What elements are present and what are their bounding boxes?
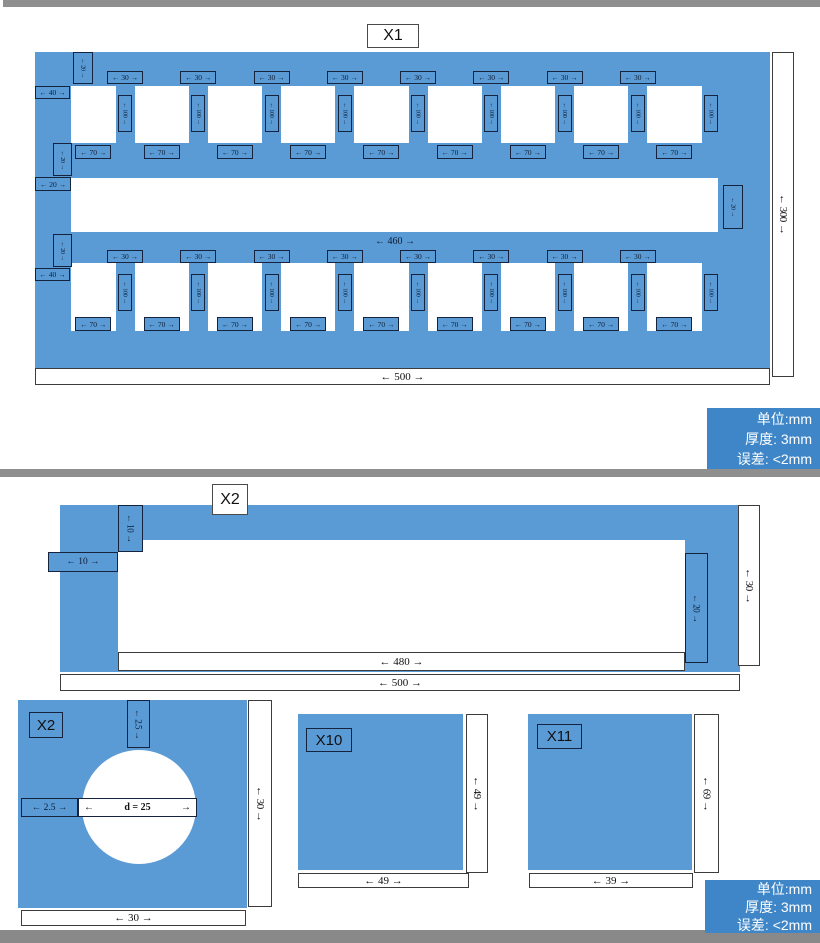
x2-square-width-strip: ← 30 → <box>21 910 246 926</box>
dim-tooth-width: ← 30 → <box>400 71 436 84</box>
x1-overall-height-label: ← 300 → <box>777 194 789 235</box>
x1-comb-gap-cutout <box>71 86 116 143</box>
dim-tooth-height: ← 100 → <box>704 95 718 132</box>
x10-shape: X10 <box>298 714 463 870</box>
diameter-arrow-right: → <box>181 802 191 813</box>
dim-x2-left-col: ← 10 → <box>48 552 118 572</box>
dim-tooth-width: ← 30 → <box>547 250 583 263</box>
x11-shape: X11 <box>528 714 692 870</box>
x2-square-height-label: ← 30 → <box>254 786 266 822</box>
dim-gap-width: ← 70 → <box>217 145 253 159</box>
x10-width-label: ← 49 → <box>364 875 403 887</box>
dim-tooth-height: ← 100 → <box>631 95 645 132</box>
spec-thickness: 厚度: 3mm <box>745 429 812 449</box>
dim-x2-right-col: ← 20 → <box>685 553 708 663</box>
part-x1-title: X1 <box>367 24 419 48</box>
x1-comb-gap-cutout <box>281 86 335 143</box>
x2-height-label: ← 30 → <box>743 568 755 604</box>
dim-tooth-height: ← 100 → <box>484 95 498 132</box>
dim-tooth-height: ← 100 → <box>558 274 572 311</box>
x1-overall-width-strip: ← 500 → <box>35 368 770 385</box>
dim-tooth-height: ← 100 → <box>484 274 498 311</box>
spec-unit-2: 单位:mm <box>757 880 812 898</box>
dim-tooth-height: ← 100 → <box>118 274 132 311</box>
dim-gap-width: ← 70 → <box>75 317 111 331</box>
spec-thickness-2: 厚度: 3mm <box>745 898 812 916</box>
dim-gap-width: ← 70 → <box>656 145 692 159</box>
part-x1-title-text: X1 <box>383 27 403 45</box>
x10-height-strip: ← 49 → <box>466 714 488 873</box>
dim-tooth-height: ← 100 → <box>265 274 279 311</box>
dim-left-col-width-bottom: ← 40 → <box>35 268 70 281</box>
x1-comb-gap-cutout <box>135 86 189 143</box>
dim-gap-width: ← 70 → <box>144 145 180 159</box>
section-divider-bar <box>0 469 820 477</box>
diameter-value: d = 25 <box>124 802 150 813</box>
dim-tooth-width: ← 30 → <box>400 250 436 263</box>
x1-comb-gap-cutout <box>354 86 408 143</box>
spec-tolerance: 误差: <2mm <box>737 449 812 469</box>
x2-inner-width-label: ← 480 → <box>380 656 424 668</box>
dim-tooth-width: ← 30 → <box>547 71 583 84</box>
bottom-gray-bar <box>0 930 820 943</box>
dim-tooth-width: ← 30 → <box>473 250 509 263</box>
dim-gap-width: ← 70 → <box>144 317 180 331</box>
part-x2-title-text: X2 <box>220 491 240 509</box>
dim-tooth-width: ← 30 → <box>254 71 290 84</box>
x2-square-height-strip: ← 30 → <box>248 700 272 907</box>
dim-gap-width: ← 70 → <box>583 145 619 159</box>
dim-tooth-height: ← 100 → <box>118 95 132 132</box>
x1-shape: ← 20 → ← 40 → ← 20 → ← 20 → ← 20 → ← 460… <box>35 52 770 368</box>
part-x2-square-title: X2 <box>29 712 63 738</box>
dim-tooth-width: ← 30 → <box>107 71 143 84</box>
spec-info-box-1: 单位:mm 厚度: 3mm 误差: <2mm <box>707 408 820 469</box>
dim-gap-width: ← 70 → <box>437 145 473 159</box>
part-x10-title: X10 <box>306 728 352 752</box>
dim-gap-width: ← 70 → <box>75 145 111 159</box>
dim-gap-width: ← 70 → <box>510 145 546 159</box>
x1-overall-height-strip: ← 300 → <box>772 52 794 377</box>
part-x11-title: X11 <box>537 724 582 749</box>
x2-shape: ← 480 → ← 10 → ← 10 → ← 20 → <box>60 505 740 672</box>
x1-comb-gap-cutout <box>574 86 628 143</box>
dim-slot-length: ← 460 → <box>335 233 455 249</box>
x1-middle-slot-cutout <box>71 178 718 232</box>
x2-square-width-label: ← 30 → <box>114 912 153 924</box>
dim-tooth-width: ← 30 → <box>620 71 656 84</box>
dim-gap-width: ← 70 → <box>583 317 619 331</box>
dim-gap-width: ← 70 → <box>217 317 253 331</box>
x1-comb-gap-cutout <box>428 86 482 143</box>
dim-tooth-height: ← 100 → <box>191 274 205 311</box>
x1-comb-gap-cutout <box>208 86 262 143</box>
dim-gap-width: ← 70 → <box>290 145 326 159</box>
dim-tooth-height: ← 100 → <box>265 95 279 132</box>
dim-tooth-height: ← 100 → <box>631 274 645 311</box>
part-x2-title: X2 <box>212 484 248 515</box>
x1-comb-gap-cutout <box>647 86 701 143</box>
dim-x2-top-band: ← 10 → <box>118 505 143 552</box>
dim-tooth-width: ← 30 → <box>620 250 656 263</box>
dim-mid-band-height-2: ← 20 → <box>53 234 72 267</box>
dim-tooth-width: ← 30 → <box>180 250 216 263</box>
dim-tooth-height: ← 100 → <box>411 274 425 311</box>
x11-width-label: ← 39 → <box>592 875 631 887</box>
top-gray-bar <box>3 0 820 7</box>
x1-comb-gap-cutout <box>501 86 555 143</box>
dim-left-col-width-top: ← 40 → <box>35 86 70 99</box>
x2-overall-width-strip: ← 500 → <box>60 674 740 691</box>
spec-unit: 单位:mm <box>757 409 812 429</box>
dim-gap-width: ← 70 → <box>363 317 399 331</box>
x11-height-label: ← 69 → <box>701 776 713 812</box>
x2-square-shape: X2 ← 2.5 → ← 2.5 → ← d = 25 → <box>18 700 247 908</box>
x2-inner-cutout <box>118 540 685 652</box>
dim-gap-width: ← 70 → <box>290 317 326 331</box>
diameter-arrow-left: ← <box>84 802 94 813</box>
dim-hole-diameter-band: ← d = 25 → <box>78 798 197 817</box>
dim-gap-width: ← 70 → <box>437 317 473 331</box>
dim-tooth-width: ← 30 → <box>107 250 143 263</box>
x2-inner-width-strip: ← 480 → <box>118 652 685 671</box>
x10-width-strip: ← 49 → <box>298 873 469 888</box>
dim-gap-width: ← 70 → <box>363 145 399 159</box>
drawing-page: X1 ← 20 → ← 40 → ← 20 → ← 20 → ← 20 → ← … <box>0 0 820 943</box>
x11-height-strip: ← 69 → <box>694 714 719 873</box>
dim-hole-left-offset: ← 2.5 → <box>21 798 78 817</box>
dim-gap-width: ← 70 → <box>510 317 546 331</box>
part-x11-title-text: X11 <box>547 728 573 745</box>
dim-tooth-height: ← 100 → <box>558 95 572 132</box>
x10-height-label: ← 49 → <box>471 776 483 812</box>
x11-width-strip: ← 39 → <box>529 873 693 888</box>
spec-info-box-2: 单位:mm 厚度: 3mm 误差: <2mm <box>705 880 820 933</box>
dim-tooth-height: ← 100 → <box>338 95 352 132</box>
spec-tolerance-2: 误差: <2mm <box>737 916 812 934</box>
dim-gap-width: ← 70 → <box>656 317 692 331</box>
dim-tooth-height: ← 100 → <box>704 274 718 311</box>
part-x2-square-title-text: X2 <box>37 717 55 734</box>
dim-tooth-height: ← 100 → <box>191 95 205 132</box>
dim-tooth-width: ← 30 → <box>327 71 363 84</box>
dim-tooth-width: ← 30 → <box>473 71 509 84</box>
part-x10-title-text: X10 <box>316 732 343 749</box>
dim-mid-band-height-1: ← 20 → <box>53 143 72 176</box>
dim-tooth-width: ← 30 → <box>254 250 290 263</box>
dim-hole-top-offset: ← 2.5 → <box>127 700 150 748</box>
dim-slot-left-width: ← 20 → <box>35 177 71 191</box>
x2-overall-width-label: ← 500 → <box>378 677 422 689</box>
dim-tooth-width: ← 30 → <box>180 71 216 84</box>
dim-top-band-height: ← 20 → <box>73 52 93 84</box>
dim-tooth-width: ← 30 → <box>327 250 363 263</box>
dim-tooth-height: ← 100 → <box>338 274 352 311</box>
x1-overall-width-label: ← 500 → <box>381 371 425 383</box>
dim-slot-end-width: ← 20 → <box>723 185 743 229</box>
x2-height-strip: ← 30 → <box>738 505 760 666</box>
dim-tooth-height: ← 100 → <box>411 95 425 132</box>
